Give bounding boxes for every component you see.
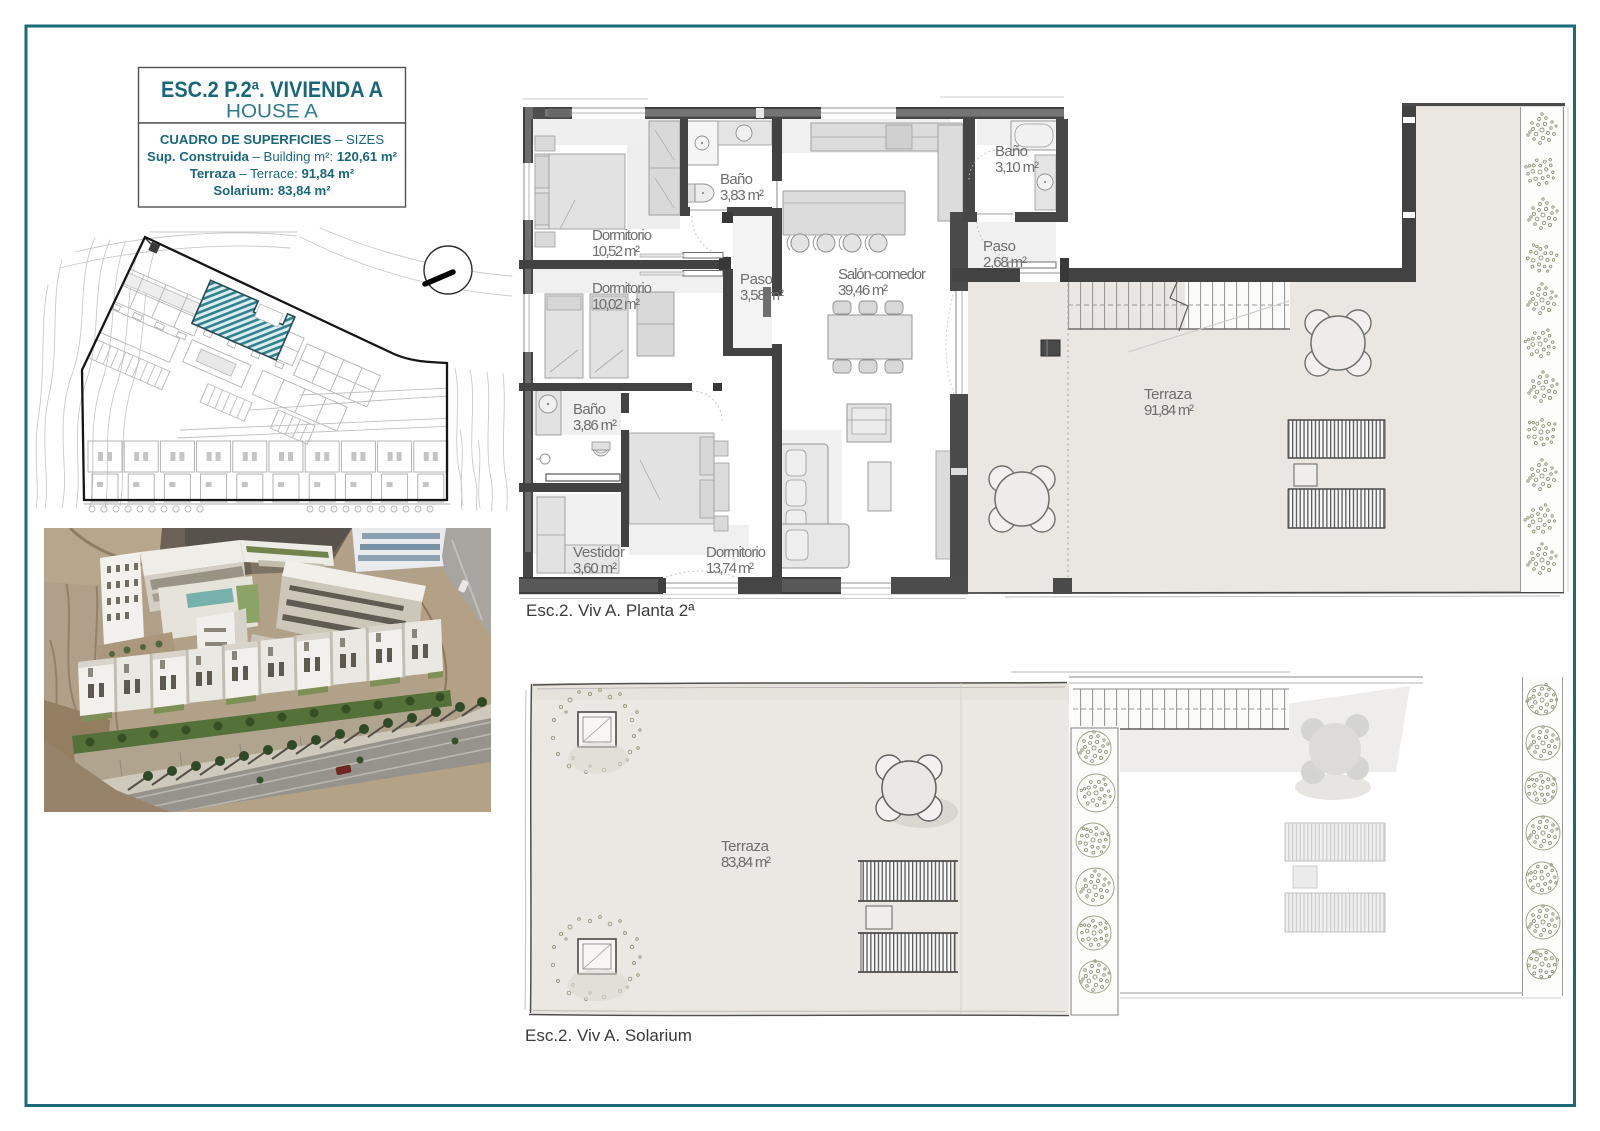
svg-text:Paso: Paso (740, 271, 773, 288)
svg-text:Dormitorio: Dormitorio (592, 280, 652, 297)
svg-text:91,84 m²: 91,84 m² (1144, 402, 1194, 419)
svg-text:Baño: Baño (995, 143, 1028, 160)
svg-text:Esc.2. Viv A. Solarium: Esc.2. Viv A. Solarium (525, 1026, 692, 1045)
svg-text:Terraza – Terrace: 91,84 m²: Terraza – Terrace: 91,84 m² (190, 166, 355, 181)
svg-text:Terraza: Terraza (1144, 386, 1193, 403)
svg-text:39,46 m²: 39,46 m² (838, 282, 888, 299)
svg-text:13,74 m²: 13,74 m² (706, 560, 754, 577)
svg-text:Baño: Baño (720, 171, 753, 188)
svg-text:Baño: Baño (573, 401, 606, 418)
svg-text:Terraza: Terraza (721, 838, 770, 855)
svg-text:Esc.2. Viv A. Planta 2ª: Esc.2. Viv A. Planta 2ª (526, 601, 695, 620)
svg-text:83,84 m²: 83,84 m² (721, 854, 771, 871)
svg-text:Solarium: 83,84 m²: Solarium: 83,84 m² (213, 183, 331, 198)
svg-text:CUADRO DE SUPERFICIES – SIZES: CUADRO DE SUPERFICIES – SIZES (160, 132, 384, 147)
svg-text:Paso: Paso (983, 238, 1016, 255)
svg-text:ESC.2 P.2ª. VIVIENDA A: ESC.2 P.2ª. VIVIENDA A (161, 77, 383, 102)
svg-text:Dormitorio: Dormitorio (592, 227, 652, 244)
svg-text:3,86 m²: 3,86 m² (573, 417, 617, 434)
svg-text:Vestidor: Vestidor (573, 544, 625, 561)
svg-text:10,52 m²: 10,52 m² (592, 243, 640, 260)
svg-text:3,10 m²: 3,10 m² (995, 159, 1039, 176)
svg-text:3,60 m²: 3,60 m² (573, 560, 617, 577)
svg-text:3,83 m²: 3,83 m² (720, 187, 764, 204)
svg-text:2,68 m²: 2,68 m² (983, 254, 1027, 271)
svg-text:10,02 m²: 10,02 m² (592, 296, 640, 313)
svg-text:HOUSE A: HOUSE A (226, 102, 318, 123)
svg-text:3,58 m²: 3,58 m² (740, 287, 784, 304)
svg-text:Sup. Construida – Building m²:: Sup. Construida – Building m²: 120,61 m² (147, 149, 398, 164)
svg-text:Dormitorio: Dormitorio (706, 544, 766, 561)
svg-text:Salón-comedor: Salón-comedor (838, 266, 926, 283)
